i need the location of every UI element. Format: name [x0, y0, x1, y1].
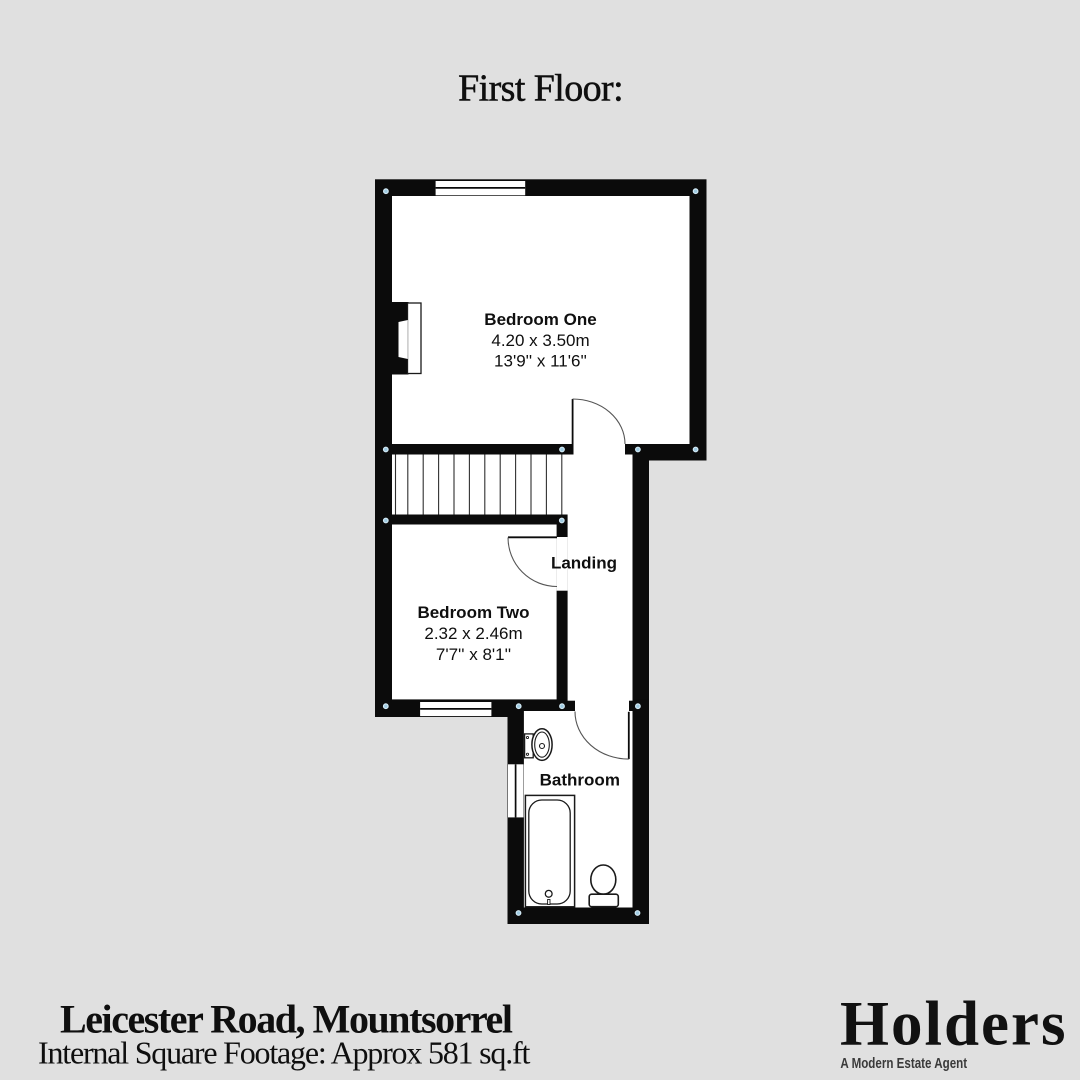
svg-text:7'7'' x 8'1'': 7'7'' x 8'1''	[436, 645, 511, 664]
svg-text:4.20 x 3.50m: 4.20 x 3.50m	[491, 331, 589, 350]
svg-text:13'9'' x 11'6'': 13'9'' x 11'6''	[494, 352, 587, 371]
svg-text:Holders: Holders	[840, 989, 1068, 1059]
svg-text:Landing: Landing	[551, 554, 617, 573]
svg-text:Bathroom: Bathroom	[540, 771, 620, 790]
svg-text:Bedroom Two: Bedroom Two	[417, 603, 529, 622]
svg-text:Internal Square Footage: Appro: Internal Square Footage: Approx 581 sq.f…	[38, 1035, 530, 1071]
svg-text:2.32 x 2.46m: 2.32 x 2.46m	[424, 624, 522, 643]
svg-text:First Floor:: First Floor:	[458, 67, 623, 109]
svg-text:A Modern Estate Agent: A Modern Estate Agent	[840, 1055, 967, 1072]
svg-text:Bedroom One: Bedroom One	[484, 310, 596, 329]
